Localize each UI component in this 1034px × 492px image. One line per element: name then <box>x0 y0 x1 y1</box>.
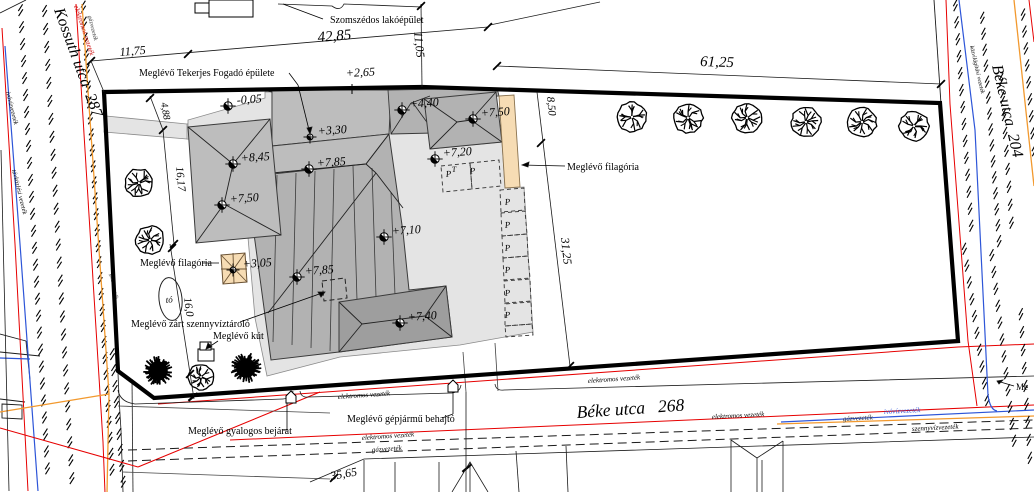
svg-text:+7,10: +7,10 <box>391 222 421 238</box>
svg-text:+7,85: +7,85 <box>316 154 346 170</box>
svg-text:+7,40: +7,40 <box>407 308 437 324</box>
svg-text:31,25: 31,25 <box>558 236 575 265</box>
svg-text:Meglévő zárt szennyvíztároló: Meglévő zárt szennyvíztároló <box>131 319 250 330</box>
svg-text:61,25: 61,25 <box>700 54 735 71</box>
svg-text:Meglévő filagória: Meglévő filagória <box>140 258 212 269</box>
svg-text:+3,30: +3,30 <box>317 122 347 138</box>
svg-text:Me: Me <box>1016 382 1028 392</box>
svg-text:+8,45: +8,45 <box>240 149 270 165</box>
svg-text:gázvezeték: gázvezeték <box>843 413 874 423</box>
svg-text:Meglévő kút: Meglévő kút <box>213 331 264 342</box>
svg-text:+7,85: +7,85 <box>304 262 334 278</box>
svg-text:+4,40: +4,40 <box>409 95 439 111</box>
svg-text:Meglévő gépjármű behajtó: Meglévő gépjármű behajtó <box>347 414 455 425</box>
svg-text:+7,20: +7,20 <box>442 144 472 160</box>
svg-text:+7,50: +7,50 <box>229 190 259 206</box>
svg-text:-0,05: -0,05 <box>236 91 262 107</box>
svg-text:42,85: 42,85 <box>317 27 353 46</box>
svg-text:11,75: 11,75 <box>119 43 146 59</box>
svg-text:Szomszédos lakóépület: Szomszédos lakóépület <box>330 15 424 26</box>
svg-text:+2,65: +2,65 <box>345 64 375 80</box>
svg-text:Meglévő filagória: Meglévő filagória <box>567 162 639 173</box>
svg-text:11,05: 11,05 <box>411 31 428 58</box>
svg-text:8,50: 8,50 <box>544 96 558 117</box>
svg-text:Meglévő gyalogos bejárat: Meglévő gyalogos bejárat <box>188 426 292 437</box>
svg-text:+7,50: +7,50 <box>480 104 510 120</box>
svg-text:+3,05: +3,05 <box>242 255 272 271</box>
svg-text:Meglévő Tekerjes Fogadó épület: Meglévő Tekerjes Fogadó épülete <box>139 68 275 79</box>
